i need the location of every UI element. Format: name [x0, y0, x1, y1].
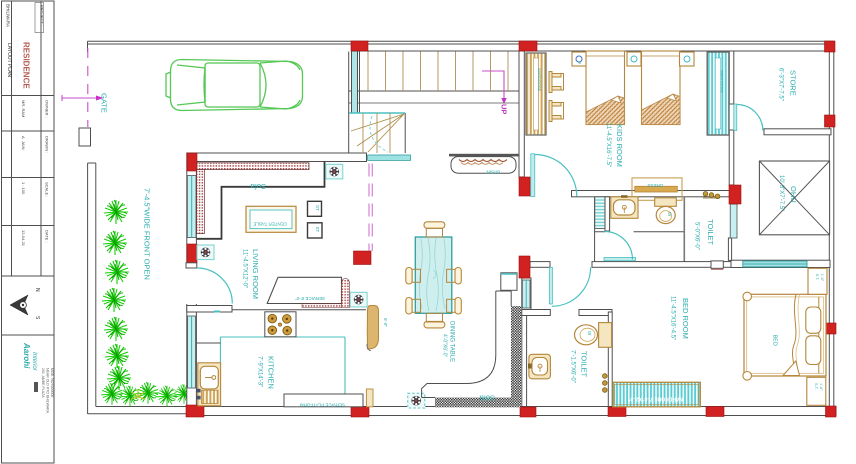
svg-text:LIVING ROOM: LIVING ROOM — [251, 249, 260, 299]
svg-text:DRAWN :: DRAWN : — [45, 136, 50, 153]
svg-text:Interior: Interior — [31, 352, 37, 372]
svg-text:LAYOUT PLAN: LAYOUT PLAN — [6, 43, 12, 77]
svg-text:OHU: OHU — [789, 186, 798, 203]
svg-text:12-04-21: 12-04-21 — [21, 230, 26, 247]
svg-text:DATE :: DATE : — [45, 230, 50, 243]
svg-text:4'-0"X6'-0": 4'-0"X6'-0" — [442, 334, 448, 357]
svg-text:GATE: GATE — [100, 93, 109, 113]
svg-text:tb: tb — [578, 61, 581, 65]
svg-text:10'-3"X7'-7.5": 10'-3"X7'-7.5" — [778, 175, 784, 211]
svg-text:DINING TABLE: DINING TABLE — [449, 321, 455, 362]
svg-text:MR. RAM: MR. RAM — [21, 100, 26, 117]
svg-text:BED ROOM: BED ROOM — [681, 298, 690, 339]
svg-text:11'-4.5"X16'-4.5": 11'-4.5"X16'-4.5" — [670, 296, 676, 340]
svg-text:ST: ST — [315, 227, 320, 233]
svg-text:11'-4.5"X12'-0": 11'-4.5"X12'-0" — [242, 249, 248, 288]
svg-text:KIDS ROOM: KIDS ROOM — [615, 124, 624, 167]
svg-text:1'-6": 1'-6" — [820, 274, 824, 282]
svg-text:TOILET: TOILET — [706, 219, 715, 246]
svg-text:Aarohi: Aarohi — [22, 342, 31, 369]
svg-text:1 : 100: 1 : 100 — [21, 182, 26, 195]
svg-text:N: N — [34, 288, 40, 292]
svg-text:S.T.: S.T. — [814, 383, 818, 390]
svg-text:SERVICE PLATFORM: SERVICE PLATFORM — [300, 403, 345, 408]
svg-text:7'-1.5"X6'-0": 7'-1.5"X6'-0" — [570, 350, 576, 383]
svg-text:STORE: STORE — [789, 70, 798, 96]
svg-text:SERVICE 5'-0": SERVICE 5'-0" — [295, 296, 325, 301]
svg-text:7'-4.5"WIDE FRONT OPEN: 7'-4.5"WIDE FRONT OPEN — [143, 188, 152, 280]
svg-text:BASIN: BASIN — [486, 170, 500, 175]
svg-text:OWNER :: OWNER : — [45, 100, 50, 118]
svg-text:A. JAIN: A. JAIN — [21, 136, 26, 150]
svg-text:WARDROBE: WARDROBE — [720, 70, 725, 94]
svg-text:MOB. 9829000000: MOB. 9829000000 — [50, 368, 54, 397]
svg-text:BHILWARA: BHILWARA — [6, 4, 11, 27]
svg-text:5'-0"X6'-0": 5'-0"X6'-0" — [694, 222, 700, 250]
svg-text:S.T.: S.T. — [815, 274, 819, 281]
svg-text:TOILET: TOILET — [580, 351, 589, 378]
svg-text:WARDROBE 7'-6"X2'-0": WARDROBE 7'-6"X2'-0" — [627, 396, 684, 402]
svg-text:RESIDENCE: RESIDENCE — [22, 42, 31, 89]
svg-text:SCALE :: SCALE : — [45, 182, 50, 197]
svg-text:PROJECT :: PROJECT : — [40, 5, 45, 26]
svg-text:NEAR OLD RTO BHILWARA: NEAR OLD RTO BHILWARA — [46, 368, 50, 414]
svg-text:5'-0": 5'-0" — [383, 318, 388, 327]
svg-text:BED: BED — [772, 335, 778, 346]
svg-text:201, AMBE PLAZA: 201, AMBE PLAZA — [41, 368, 45, 398]
svg-text:UP: UP — [500, 104, 509, 114]
svg-text:ST: ST — [315, 205, 320, 211]
svg-text:DRESS: DRESS — [647, 183, 663, 188]
svg-text:WARDROBE: WARDROBE — [537, 68, 542, 92]
svg-text:6'-3"X7'-7.5": 6'-3"X7'-7.5" — [778, 68, 784, 101]
svg-text:KITCHEN: KITCHEN — [267, 356, 276, 389]
svg-text:7'-9"X14'-3": 7'-9"X14'-3" — [257, 356, 263, 387]
svg-text:Sofa: Sofa — [250, 182, 266, 191]
svg-text:11'-4.5"X16'-7.5": 11'-4.5"X16'-7.5" — [605, 123, 611, 167]
svg-text:Sofa: Sofa — [479, 394, 495, 403]
svg-text:1'-6": 1'-6" — [819, 383, 823, 391]
svg-text:CENTER TABLE: CENTER TABLE — [253, 222, 287, 227]
